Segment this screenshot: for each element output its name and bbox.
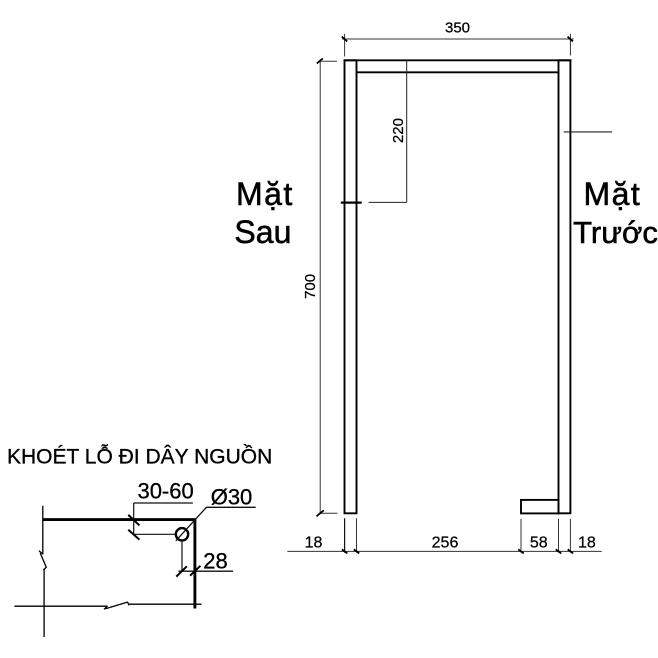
svg-text:58: 58 — [530, 535, 548, 552]
svg-text:700: 700 — [302, 274, 319, 299]
svg-text:Ø30: Ø30 — [211, 485, 253, 510]
svg-text:256: 256 — [432, 535, 459, 552]
svg-text:220: 220 — [390, 118, 407, 143]
svg-text:30-60: 30-60 — [137, 479, 193, 504]
svg-text:Mặt: Mặt — [236, 176, 294, 212]
svg-text:18: 18 — [578, 535, 596, 552]
svg-text:350: 350 — [445, 20, 470, 37]
svg-text:28: 28 — [203, 549, 227, 574]
svg-text:Sau: Sau — [234, 214, 291, 250]
svg-text:Trước: Trước — [573, 215, 658, 250]
svg-text:KHOÉT LỖ ĐI DÂY NGUỒN: KHOÉT LỖ ĐI DÂY NGUỒN — [7, 445, 272, 469]
svg-text:18: 18 — [305, 535, 323, 552]
svg-text:Mặt: Mặt — [583, 176, 641, 212]
